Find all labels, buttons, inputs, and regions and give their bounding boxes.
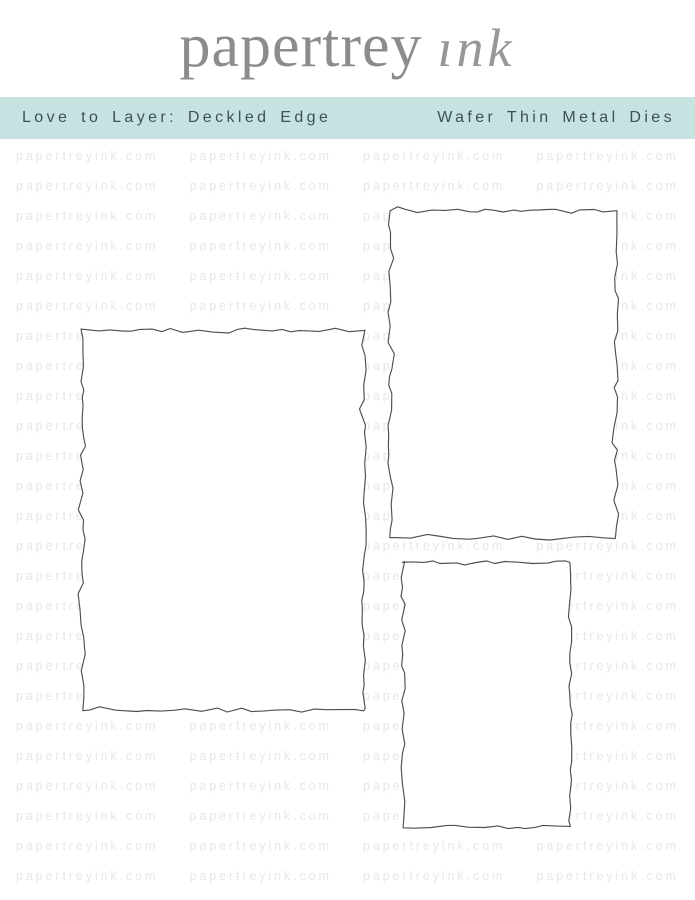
die-medium-rectangle	[388, 207, 619, 540]
product-image: papertrey ınk Love to Layer: Deckled Edg…	[0, 0, 695, 900]
die-small-rectangle	[401, 561, 572, 829]
die-shapes	[0, 0, 695, 900]
die-large-rectangle	[78, 328, 366, 712]
